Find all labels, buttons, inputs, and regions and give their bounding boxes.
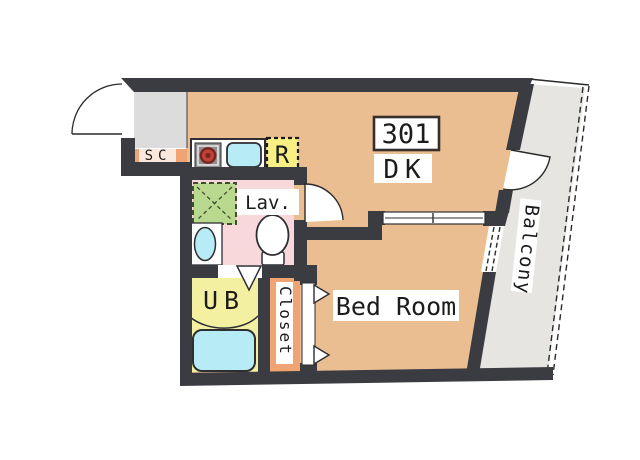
floor-plan: 301 DK Bed Room Lav. UB Closet Balcony S…: [0, 0, 640, 460]
kitchen-counter: [191, 139, 265, 170]
dk-label: DK: [383, 155, 426, 185]
kitchen-sink-icon: [227, 143, 261, 167]
closet-door-strip: [302, 283, 315, 365]
entrance-floor: [134, 86, 187, 148]
entrance-door-swing-icon: [72, 84, 122, 134]
closet-label: Closet: [276, 286, 295, 356]
balcony-top-edge: [529, 79, 589, 85]
bathtub-icon: [193, 330, 255, 371]
toilet-icon: [257, 215, 289, 265]
basin-bowl: [195, 228, 216, 261]
wash-basin-icon: [191, 223, 222, 265]
toilet-bowl: [257, 215, 289, 255]
unit-number: 301: [382, 119, 431, 150]
closet-label-group: Closet: [276, 282, 295, 364]
shoe-cupboard-label: SC: [145, 148, 172, 164]
wall-entrance-south: [121, 162, 190, 176]
lavatory-label: Lav.: [245, 192, 291, 214]
washing-machine-space-icon: [193, 183, 236, 224]
wall-top: [121, 78, 533, 92]
floor-plan-page: 301 DK Bed Room Lav. UB Closet Balcony S…: [0, 0, 640, 460]
refrigerator-label: R: [275, 141, 290, 169]
wall-ub-closet: [258, 278, 270, 373]
wall-partition-right-b: [483, 211, 509, 226]
burner-center-icon: [205, 153, 210, 158]
bedroom-label: Bed Room: [336, 292, 456, 321]
wall-partition-left: [294, 227, 378, 240]
unit-bath-label: UB: [203, 286, 245, 315]
wall-lav-south-west: [182, 265, 218, 278]
